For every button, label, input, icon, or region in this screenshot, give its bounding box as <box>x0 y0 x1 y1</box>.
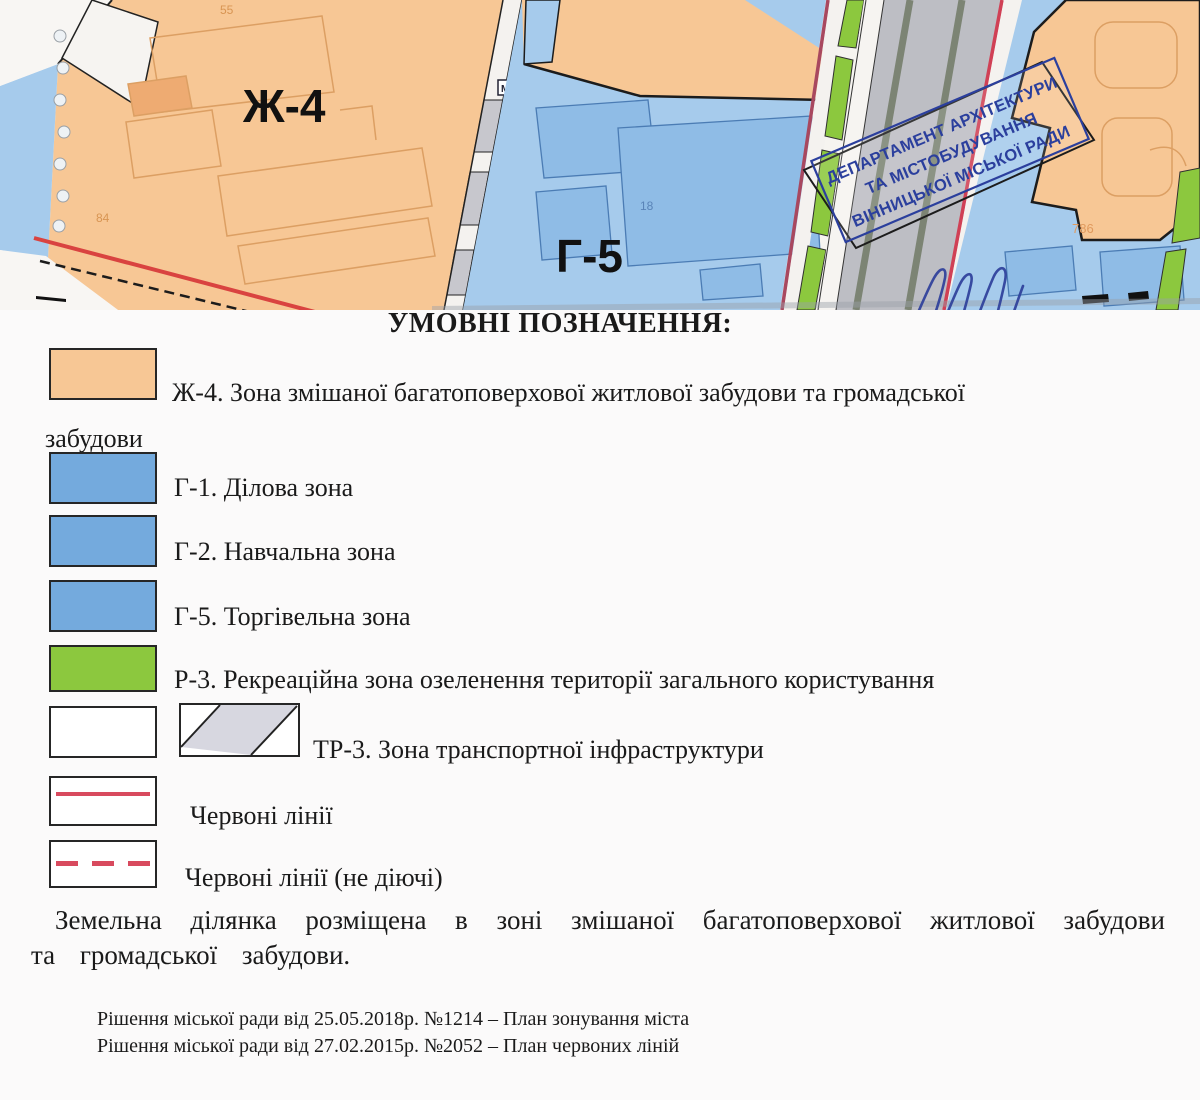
zoning-document: 84 55 Ж-4 М 18 Г-5 <box>0 0 1200 1100</box>
legend-swatch-tr3-white <box>49 706 157 758</box>
map-label-786: 786 <box>1072 221 1094 236</box>
legend-swatch-g1 <box>49 452 157 504</box>
legend-label-red-lines-inactive: Червоні лінії (не діючі) <box>185 862 443 894</box>
legend-label-g1: Г-1. Ділова зона <box>174 472 353 504</box>
footnote-2: Рішення міської ради від 27.02.2015р. №2… <box>97 1033 689 1060</box>
map-label-55: 55 <box>220 3 234 17</box>
red-line-sample <box>56 792 150 796</box>
zone-label-zh4: Ж-4 <box>242 80 326 132</box>
legend-swatch-tr3-hatched <box>179 703 300 757</box>
legend-swatch-red-lines-inactive <box>49 840 157 888</box>
legend-swatch-g2 <box>49 515 157 567</box>
red-dashed-line-sample <box>56 861 150 866</box>
legend-title: УМОВНІ ПОЗНАЧЕННЯ: <box>0 308 1120 340</box>
map-label-18: 18 <box>640 199 654 213</box>
legend-label-r3: Р-3. Рекреаційна зона озеленення територ… <box>174 664 934 696</box>
legend-swatch-red-lines <box>49 776 157 826</box>
map-label-84: 84 <box>96 211 110 225</box>
left-edge-strip <box>0 64 58 258</box>
parcel-note: Земельна ділянка розміщена в зоні змішан… <box>31 903 1165 973</box>
legend-label-tr3: ТР-3. Зона транспортної інфраструктури <box>313 734 764 766</box>
legend-swatch-r3 <box>49 645 157 692</box>
legend-label-zh4: Ж-4. Зона змішаної багатоповерхової житл… <box>45 370 1055 462</box>
legend-label-g5: Г-5. Торгівельна зона <box>174 601 411 633</box>
legend-swatch-g5 <box>49 580 157 632</box>
legend-label-g2: Г-2. Навчальна зона <box>174 536 396 568</box>
zone-label-g5: Г-5 <box>556 230 623 282</box>
legend-label-red-lines: Червоні лінії <box>190 800 333 832</box>
footnote-1: Рішення міської ради від 25.05.2018р. №1… <box>97 1006 689 1033</box>
footnotes: Рішення міської ради від 25.05.2018р. №1… <box>97 1006 689 1060</box>
zoning-map: 84 55 Ж-4 М 18 Г-5 <box>0 0 1200 310</box>
